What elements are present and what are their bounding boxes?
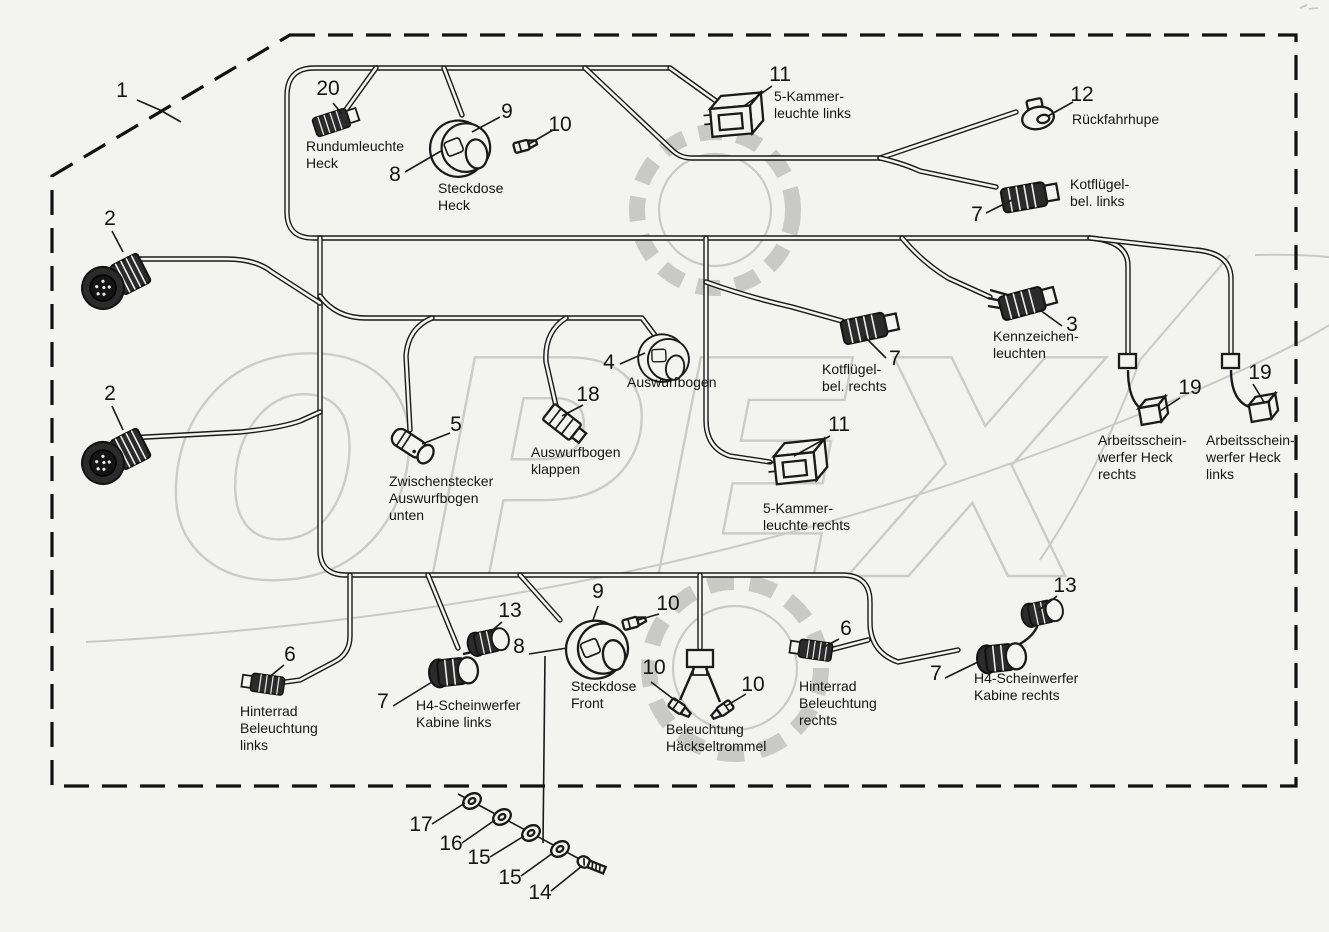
connector-arbeitsscheinwerfer-rechts-19	[1138, 396, 1170, 424]
connector-hinterrad-links-6	[241, 672, 285, 696]
callout-number-8-4: 8	[389, 163, 401, 186]
watermark-text: OPEX	[165, 298, 1107, 647]
callout-number-7-13: 7	[889, 347, 901, 370]
part-label-29: H4-ScheinwerferKabine rechts	[974, 670, 1079, 703]
callout-number-8-21: 8	[513, 635, 525, 658]
callout-number-13-18: 13	[498, 599, 521, 622]
callout-number-6-22: 6	[284, 643, 296, 666]
callout-number-11-5: 11	[769, 63, 791, 86]
callout-number-10-24: 10	[642, 656, 665, 679]
diagram-page: OPEX	[0, 0, 1329, 932]
part-label-22: HinterradBeleuchtunglinks	[240, 703, 318, 753]
part-label-27: HinterradBeleuchtungrechts	[799, 678, 877, 728]
callout-number-18-11: 18	[576, 383, 599, 406]
callout-number-10-25: 10	[741, 673, 764, 696]
part-label-17: Arbeitsschein-werfer Hecklinks	[1205, 432, 1295, 482]
callout-number-17-30: 17	[409, 813, 432, 836]
part-label-16: Arbeitsschein-werfer Heckrechts	[1097, 432, 1187, 482]
callout-number-10-3: 10	[548, 113, 571, 136]
part-label-6: Rückfahrhupe	[1072, 111, 1159, 127]
callout-number-2-8: 2	[104, 207, 116, 230]
connector-round-2-lower	[75, 423, 154, 491]
washer-16	[490, 806, 514, 828]
part-label-4: SteckdoseHeck	[438, 180, 504, 213]
screw-14	[576, 854, 607, 875]
washer-15a	[519, 822, 543, 844]
callout-number-16-31: 16	[439, 832, 462, 855]
callout-number-9-2: 9	[501, 100, 513, 123]
callout-number-14-34: 14	[528, 881, 552, 904]
part-label-10: Auswurfbogen	[627, 374, 717, 390]
callout-number-10-20: 10	[656, 592, 679, 615]
connector-rundumleuchte-heck-20	[312, 105, 361, 137]
part-label-23: H4-ScheinwerferKabine links	[416, 697, 521, 730]
callout-number-4-10: 4	[603, 351, 615, 374]
callout-number-12-6: 12	[1070, 83, 1093, 106]
callout-number-1-0: 1	[116, 79, 128, 102]
part-label-7: Kotflügel-bel. links	[1070, 176, 1129, 209]
callout-number-7-7: 7	[971, 203, 983, 226]
connector-arbeitsscheinwerfer-links-19	[1248, 393, 1280, 421]
callout-number-11-15: 11	[828, 413, 850, 436]
callout-number-2-9: 2	[104, 382, 116, 405]
callout-number-15-32: 15	[467, 846, 490, 869]
washer-17	[460, 790, 484, 812]
corner-mark	[1300, 5, 1318, 9]
connector-kotfluegel-bel-links-7	[1000, 180, 1059, 213]
terminal-10-top	[513, 138, 538, 154]
callout-number-6-27: 6	[840, 617, 852, 640]
callout-number-7-29: 7	[930, 662, 942, 685]
part-label-5: 5-Kammer-leuchte links	[774, 88, 851, 121]
washer-15b	[548, 838, 572, 860]
connector-h4-kabine-links-7	[428, 655, 480, 688]
callout-number-9-19: 9	[592, 580, 604, 603]
callout-number-19-16: 19	[1178, 376, 1201, 399]
callout-number-7-23: 7	[377, 690, 389, 713]
callout-number-5-12: 5	[450, 413, 462, 436]
callout-number-13-28: 13	[1053, 574, 1076, 597]
callout-number-19-17: 19	[1248, 361, 1271, 384]
part-label-13: Kotflügel-bel. rechts	[822, 361, 887, 394]
part-label-21: SteckdoseFront	[571, 678, 637, 711]
part-label-26: BeleuchtungHäckseltrommel	[666, 721, 766, 754]
wiring-harness-diagram: OPEX	[0, 0, 1329, 932]
callout-number-20-1: 20	[316, 77, 339, 100]
callout-number-15-33: 15	[498, 866, 521, 889]
